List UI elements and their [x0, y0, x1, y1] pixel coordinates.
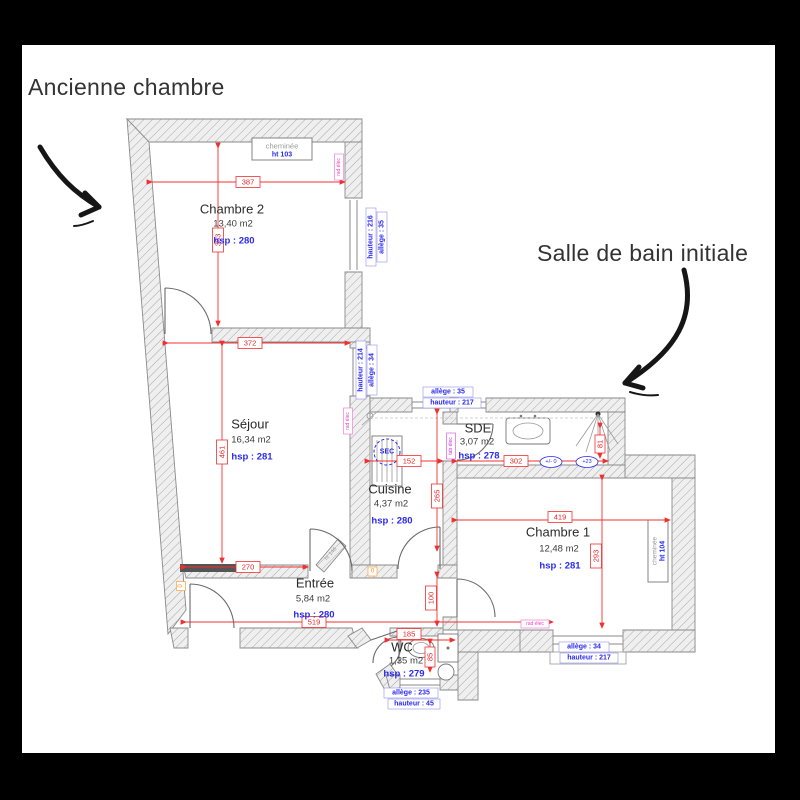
- dim-302: 302: [510, 457, 523, 466]
- room-chambre1-name: Chambre 1: [526, 525, 590, 540]
- rad-elec-chambre1: rad élec: [526, 621, 544, 627]
- dim-372: 372: [244, 339, 257, 348]
- room-wc-hsp: hsp : 279: [383, 669, 424, 680]
- room-chambre2-name: Chambre 2: [200, 202, 264, 217]
- room-sejour-area: 16,34 m2: [231, 435, 271, 446]
- door-cuisine: [398, 527, 440, 569]
- wall-left-slanted: [127, 119, 186, 634]
- fireplace-chambre2-height: ht 103: [272, 152, 292, 159]
- window-sde-hauteur: hauteur : 217: [430, 400, 474, 407]
- room-wc-area: 1,35 m2: [389, 656, 423, 667]
- dim-270: 270: [242, 563, 255, 572]
- fireplace-chambre1-label: cheminée: [652, 537, 659, 566]
- wall-cuisine-chambre1: [443, 461, 457, 577]
- dryer-label: SEC: [380, 449, 394, 456]
- window-sejour-allege: allège : 34: [369, 353, 376, 387]
- level-plus23: +23: [582, 459, 591, 465]
- room-sde-area: 3,07 m2: [460, 437, 494, 448]
- dim-81: 81: [596, 440, 605, 448]
- window-wc-hauteur: hauteur : 45: [394, 701, 434, 708]
- window-wc: [400, 679, 440, 685]
- rad-elec-chambre2: rad élec: [336, 158, 342, 176]
- wall-block-wc-chambre1: [458, 630, 520, 652]
- wall-entree-bottom-stub: [170, 628, 188, 648]
- level-zero: +/- 0: [545, 459, 556, 465]
- wall-cuisine-entree-right: [438, 565, 457, 578]
- room-chambre2-hsp: hsp : 280: [213, 236, 254, 247]
- room-entree-area: 5,84 m2: [296, 594, 330, 605]
- floor-plan: cheminée ht 103 cheminée ht 104 SEC ht 1…: [0, 0, 800, 800]
- room-chambre1-area: 12,48 m2: [539, 544, 579, 555]
- dim-100: 100: [427, 592, 436, 605]
- window-chambre1-hauteur: hauteur : 217: [567, 655, 611, 662]
- room-chambre1-hsp: hsp : 281: [539, 561, 581, 572]
- window-sde-allege: allège : 35: [431, 389, 465, 396]
- door-chambre2: [165, 288, 211, 334]
- wall-top-cuisine-left: [370, 398, 412, 412]
- wc-handbasin-drain: [447, 647, 450, 650]
- wall-right-chambre2-upper: [345, 142, 362, 198]
- tab-elec-sde: tab élec: [448, 437, 454, 455]
- dim-185: 185: [403, 630, 416, 639]
- wall-top-chambre2: [127, 119, 362, 142]
- washbasin-tap-dot: [534, 415, 537, 418]
- dim-293: 293: [592, 550, 601, 563]
- dim-265: 265: [433, 490, 442, 503]
- wall-sde-chambre1: [457, 465, 625, 478]
- water-heater: [438, 664, 454, 680]
- rad-elec-sejour: rad élec: [345, 412, 351, 430]
- room-entree-hsp: hsp : 280: [293, 610, 334, 621]
- window-chambre2: [350, 200, 357, 270]
- window-chambre1-allege: allège : 34: [567, 644, 601, 651]
- wall-wc-right: [458, 652, 478, 700]
- room-sejour-name: Séjour: [231, 417, 269, 432]
- dim-152: 152: [403, 457, 416, 466]
- dim-85: 85: [426, 653, 435, 661]
- window-wc-allege: allège : 235: [392, 690, 430, 697]
- room-wc-name: WC: [391, 640, 413, 655]
- dim-461: 461: [218, 446, 227, 459]
- room-entree-name: Entrée: [296, 576, 334, 591]
- washbasin-tap-dot: [520, 415, 523, 418]
- wall-chambre1-door-stub: [443, 617, 457, 630]
- door-chambre1: [457, 579, 495, 617]
- wall-chambre2-sejour: [212, 328, 370, 342]
- window-chambre2-hauteur: hauteur : 216: [368, 215, 375, 259]
- wall-jog-chambre1-top: [625, 455, 695, 478]
- wall-top-sde: [486, 398, 625, 412]
- window-sejour-hauteur: hauteur : 214: [358, 348, 365, 392]
- wall-entree-bottom: [240, 628, 358, 648]
- window-chambre2-allege: allège : 35: [379, 220, 386, 254]
- arrow-to-sde-flick: [630, 392, 658, 395]
- wall-sejour-cuisine: [350, 396, 370, 578]
- room-cuisine-area: 4,37 m2: [374, 499, 408, 510]
- room-cuisine-hsp: hsp : 280: [371, 516, 412, 527]
- wall-right-chambre1: [672, 478, 695, 652]
- room-sde-name: SDE: [465, 421, 492, 436]
- room-sde-hsp: hsp : 278: [458, 451, 499, 462]
- room-chambre2-area: 13,40 m2: [213, 219, 253, 230]
- wall-bottom-chambre1-right: [623, 630, 695, 652]
- arrow-to-sde: [625, 270, 688, 383]
- fireplace-chambre1-height: ht 104: [660, 541, 667, 561]
- dim-387: 387: [242, 178, 255, 187]
- fireplace-chambre2-label: cheminée: [266, 142, 299, 151]
- dim-419: 419: [554, 513, 567, 522]
- door-entree-left: [190, 584, 234, 628]
- room-sejour-hsp: hsp : 281: [231, 452, 273, 463]
- arrow-to-chambre2-flick: [74, 221, 93, 226]
- room-cuisine-name: Cuisine: [368, 482, 411, 497]
